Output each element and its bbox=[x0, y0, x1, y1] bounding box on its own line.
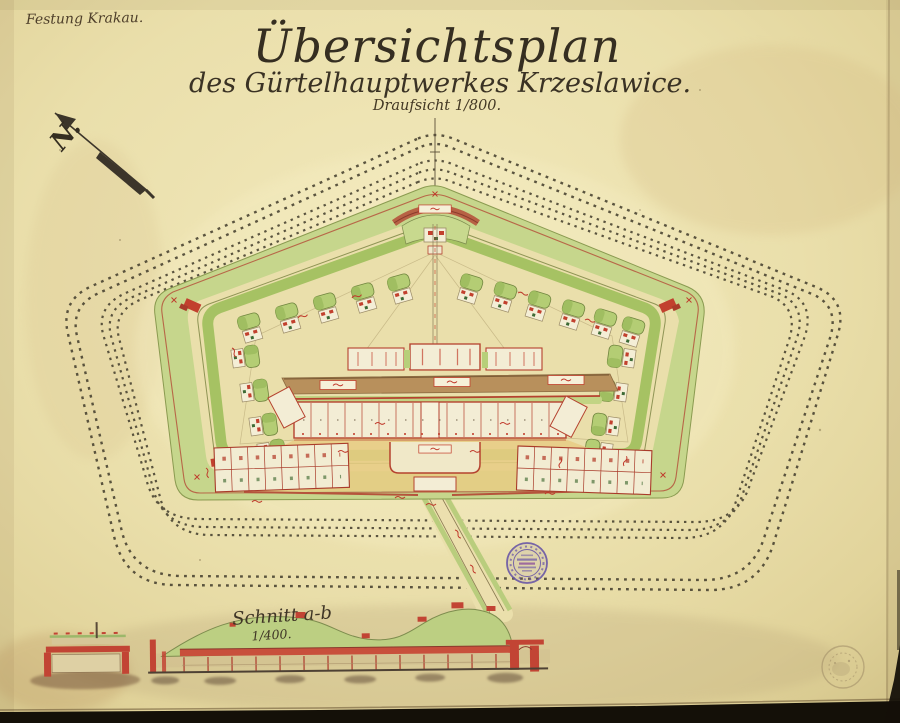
right-casemate-wing bbox=[516, 446, 651, 495]
left-casemate-wing bbox=[214, 443, 349, 492]
plan-title: Übersichtsplan bbox=[253, 18, 621, 73]
gorge-guardhouse bbox=[414, 477, 456, 491]
scanned-plan-page: Schnitt a-b 1/400. N. Übersichtsplan des… bbox=[0, 0, 900, 723]
plan-canvas: Schnitt a-b 1/400. N. Übersichtsplan des… bbox=[0, 0, 900, 723]
archive-note: Festung Krakau. bbox=[25, 10, 144, 28]
plan-subtitle: des Gürtelhauptwerkes Krzeslawice. bbox=[189, 68, 691, 99]
plan-view-scale: Draufsicht 1/800. bbox=[372, 98, 501, 114]
library-stamp-purple bbox=[507, 543, 547, 583]
section-scale: 1/400. bbox=[251, 626, 292, 643]
